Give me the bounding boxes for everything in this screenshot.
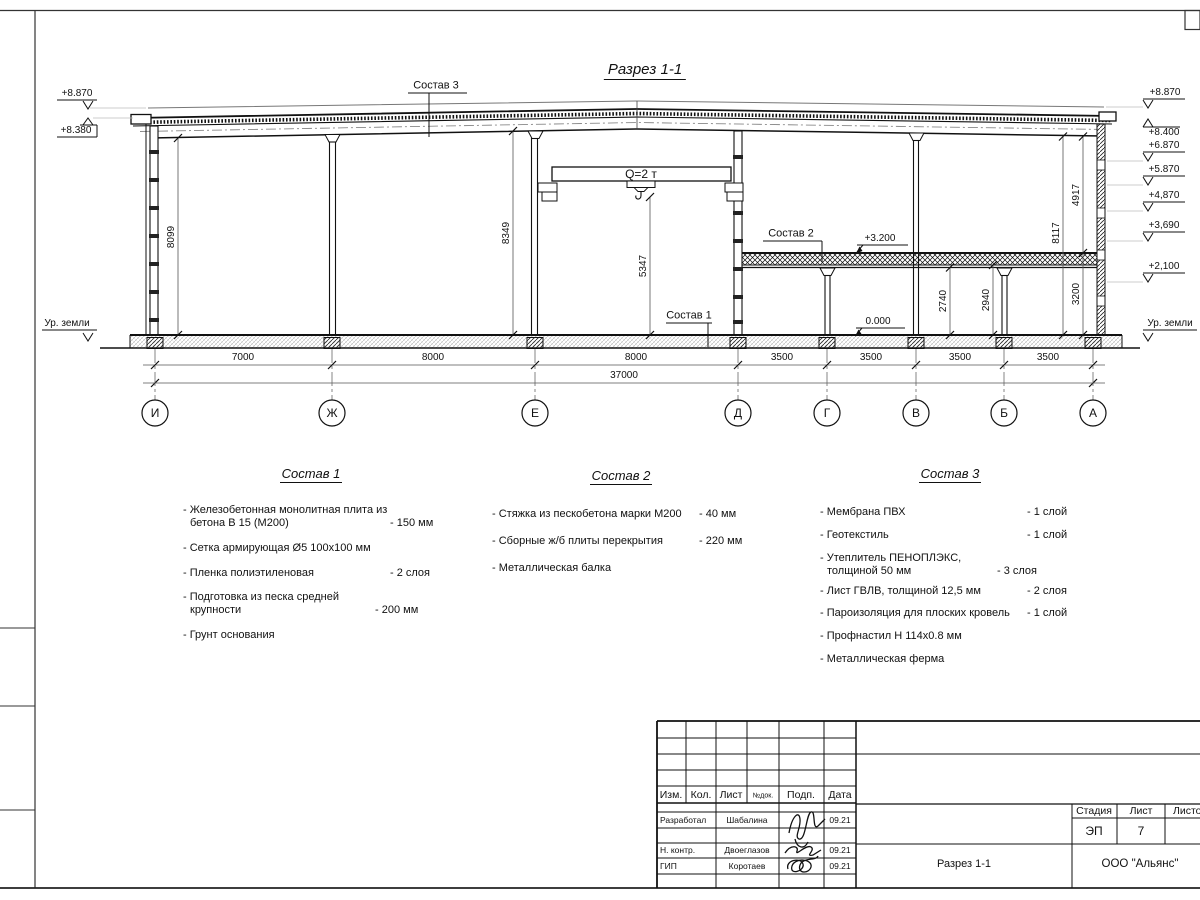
composition-1-title: Состав 1 (183, 466, 439, 481)
stamp-role-ncontrol: Н. контр. (660, 845, 695, 855)
span-7000: 7000 (232, 353, 254, 363)
stamp-col-podp: Подп. (787, 789, 815, 801)
list-item: - Геотекстиль - 1 слой (820, 529, 1080, 542)
dim-4917: 4917 (1072, 184, 1082, 206)
dim-2940: 2940 (982, 289, 992, 311)
composition-1: Состав 1 - Железобетонная монолитная пли… (183, 466, 439, 651)
level-right-8870: +8.870 (1150, 88, 1181, 98)
list-item: - Профнастил Н 114х0.8 мм (820, 630, 1080, 643)
list-item: - Пароизоляция для плоских кровель - 1 с… (820, 607, 1080, 620)
stamp-sheet-label: Лист (1130, 805, 1153, 817)
stamp-stage-label: Стадия (1076, 805, 1112, 817)
axis-label-b: Б (1000, 407, 1008, 419)
mezzanine-slab (742, 253, 1097, 335)
stamp-sheets-label: Листов (1173, 805, 1200, 817)
level-left-8870: +8.870 (62, 89, 93, 99)
crane-hook (636, 192, 641, 200)
list-item: - Сетка армирующая Ø5 100х100 мм (183, 542, 439, 555)
level-right-6870: +6.870 (1149, 141, 1180, 151)
stamp-name-gip: Коротаев (729, 861, 766, 871)
stamp-name-developer: Шабалина (726, 815, 767, 825)
right-eave-cap (1099, 112, 1116, 121)
span-3500b: 3500 (860, 353, 882, 363)
signature-shabalina (789, 812, 825, 839)
stamp-company-name: ООО "Альянс" (1102, 858, 1179, 870)
leader-sostav2: Состав 2 (768, 229, 814, 240)
ground-label-right: Ур. земли (1147, 319, 1192, 329)
level-right-4870: +4,870 (1149, 191, 1180, 201)
level-right-3690: +3,690 (1149, 221, 1180, 231)
axis-label-zh: Ж (326, 407, 337, 419)
stamp-role-gip: ГИП (660, 861, 677, 871)
walls-columns (146, 124, 1105, 335)
level-right-2100: +2,100 (1149, 262, 1180, 272)
stamp-doc-name: Разрез 1-1 (937, 858, 991, 870)
dim-5347: 5347 (639, 255, 649, 277)
dim-8099: 8099 (167, 226, 177, 248)
stamp-date-developer: 09.21 (829, 815, 850, 825)
format-box (1185, 11, 1200, 30)
stamp-col-ndok: №док. (753, 793, 774, 800)
dim-8349: 8349 (502, 222, 512, 244)
list-item: - Металлическая балка (492, 562, 750, 575)
axis-bubbles (142, 400, 1106, 426)
stamp-col-kol: Кол. (691, 789, 712, 801)
dim-2740: 2740 (939, 290, 949, 312)
stamp-date-gip: 09.21 (829, 861, 850, 871)
list-item: - Сборные ж/б плиты перекрытия - 220 мм (492, 535, 750, 548)
axis-label-g: Г (824, 407, 831, 419)
span-8000a: 8000 (422, 353, 444, 363)
floor-level-label: 0.000 (865, 317, 890, 327)
stamp-name-ncontrol: Двоеглазов (724, 845, 769, 855)
floor-slab (100, 335, 1140, 349)
stamp-col-list: Лист (720, 789, 743, 801)
stamp-col-data: Дата (828, 789, 851, 801)
list-item: - Железобетонная монолитная плита из бет… (183, 504, 439, 530)
stamp-stage-value: ЭП (1085, 824, 1102, 838)
level-left-8380: +8.380 (61, 126, 92, 136)
left-eave-cap (131, 115, 151, 125)
signature-dvoeglazov (785, 847, 821, 856)
span-total-37000: 37000 (610, 371, 638, 381)
list-item: - Пленка полиэтиленовая - 2 слоя (183, 567, 439, 580)
span-3500c: 3500 (949, 353, 971, 363)
level-right-5870: +5.870 (1149, 165, 1180, 175)
drawing-sheet: Разрез 1-1 Состав 3 Состав 2 Состав 1 Q=… (0, 0, 1200, 900)
drawing-title: Разрез 1-1 (604, 62, 686, 80)
list-item: - Утеплитель ПЕНОПЛЭКС, толщиной 50 мм -… (820, 552, 1080, 578)
list-item: - Стяжка из пескобетона марки М200 - 40 … (492, 508, 750, 521)
composition-3-title: Состав 3 (820, 466, 1080, 481)
list-item: - Лист ГВЛВ, толщиной 12,5 мм - 2 слоя (820, 585, 1080, 598)
composition-2-title: Состав 2 (492, 468, 750, 483)
axis-label-a: А (1089, 407, 1097, 419)
stamp-date-ncontrol: 09.21 (829, 845, 850, 855)
list-item: - Мембрана ПВХ - 1 слой (820, 506, 1080, 519)
axis-label-i: И (151, 407, 160, 419)
span-3500a: 3500 (771, 353, 793, 363)
leader-sostav3: Состав 3 (413, 81, 459, 92)
span-8000b: 8000 (625, 353, 647, 363)
roof (90, 101, 1143, 138)
axis-label-d: Д (734, 407, 742, 419)
section-linework (0, 0, 1200, 900)
axis-label-v: В (912, 407, 920, 419)
stamp-col-izm: Изм. (660, 789, 683, 801)
dim-3200: 3200 (1072, 283, 1082, 305)
composition-3: Состав 3 - Мембрана ПВХ - 1 слой - Геоте… (820, 466, 1080, 666)
span-3500d: 3500 (1037, 353, 1059, 363)
ground-label-left: Ур. земли (44, 319, 89, 329)
signatures (785, 812, 825, 872)
crane-capacity-label: Q=2 т (625, 168, 657, 180)
axis-label-e: Е (531, 407, 539, 419)
composition-2: Состав 2 - Стяжка из пескобетона марки М… (492, 468, 750, 578)
stamp-sheet-number: 7 (1138, 824, 1145, 838)
level-right-8400: +8.400 (1149, 128, 1180, 138)
list-item: - Подготовка из песка средней крупности … (183, 591, 439, 617)
leader-sostav1: Состав 1 (666, 311, 712, 322)
list-item: - Грунт основания (183, 629, 439, 642)
mezzanine-level-label: +3.200 (865, 234, 896, 244)
list-item: - Металлическая ферма (820, 653, 1080, 666)
stamp-role-developer: Разработал (660, 815, 706, 825)
dim-8117: 8117 (1052, 222, 1062, 244)
sheet-frame (0, 11, 1200, 889)
